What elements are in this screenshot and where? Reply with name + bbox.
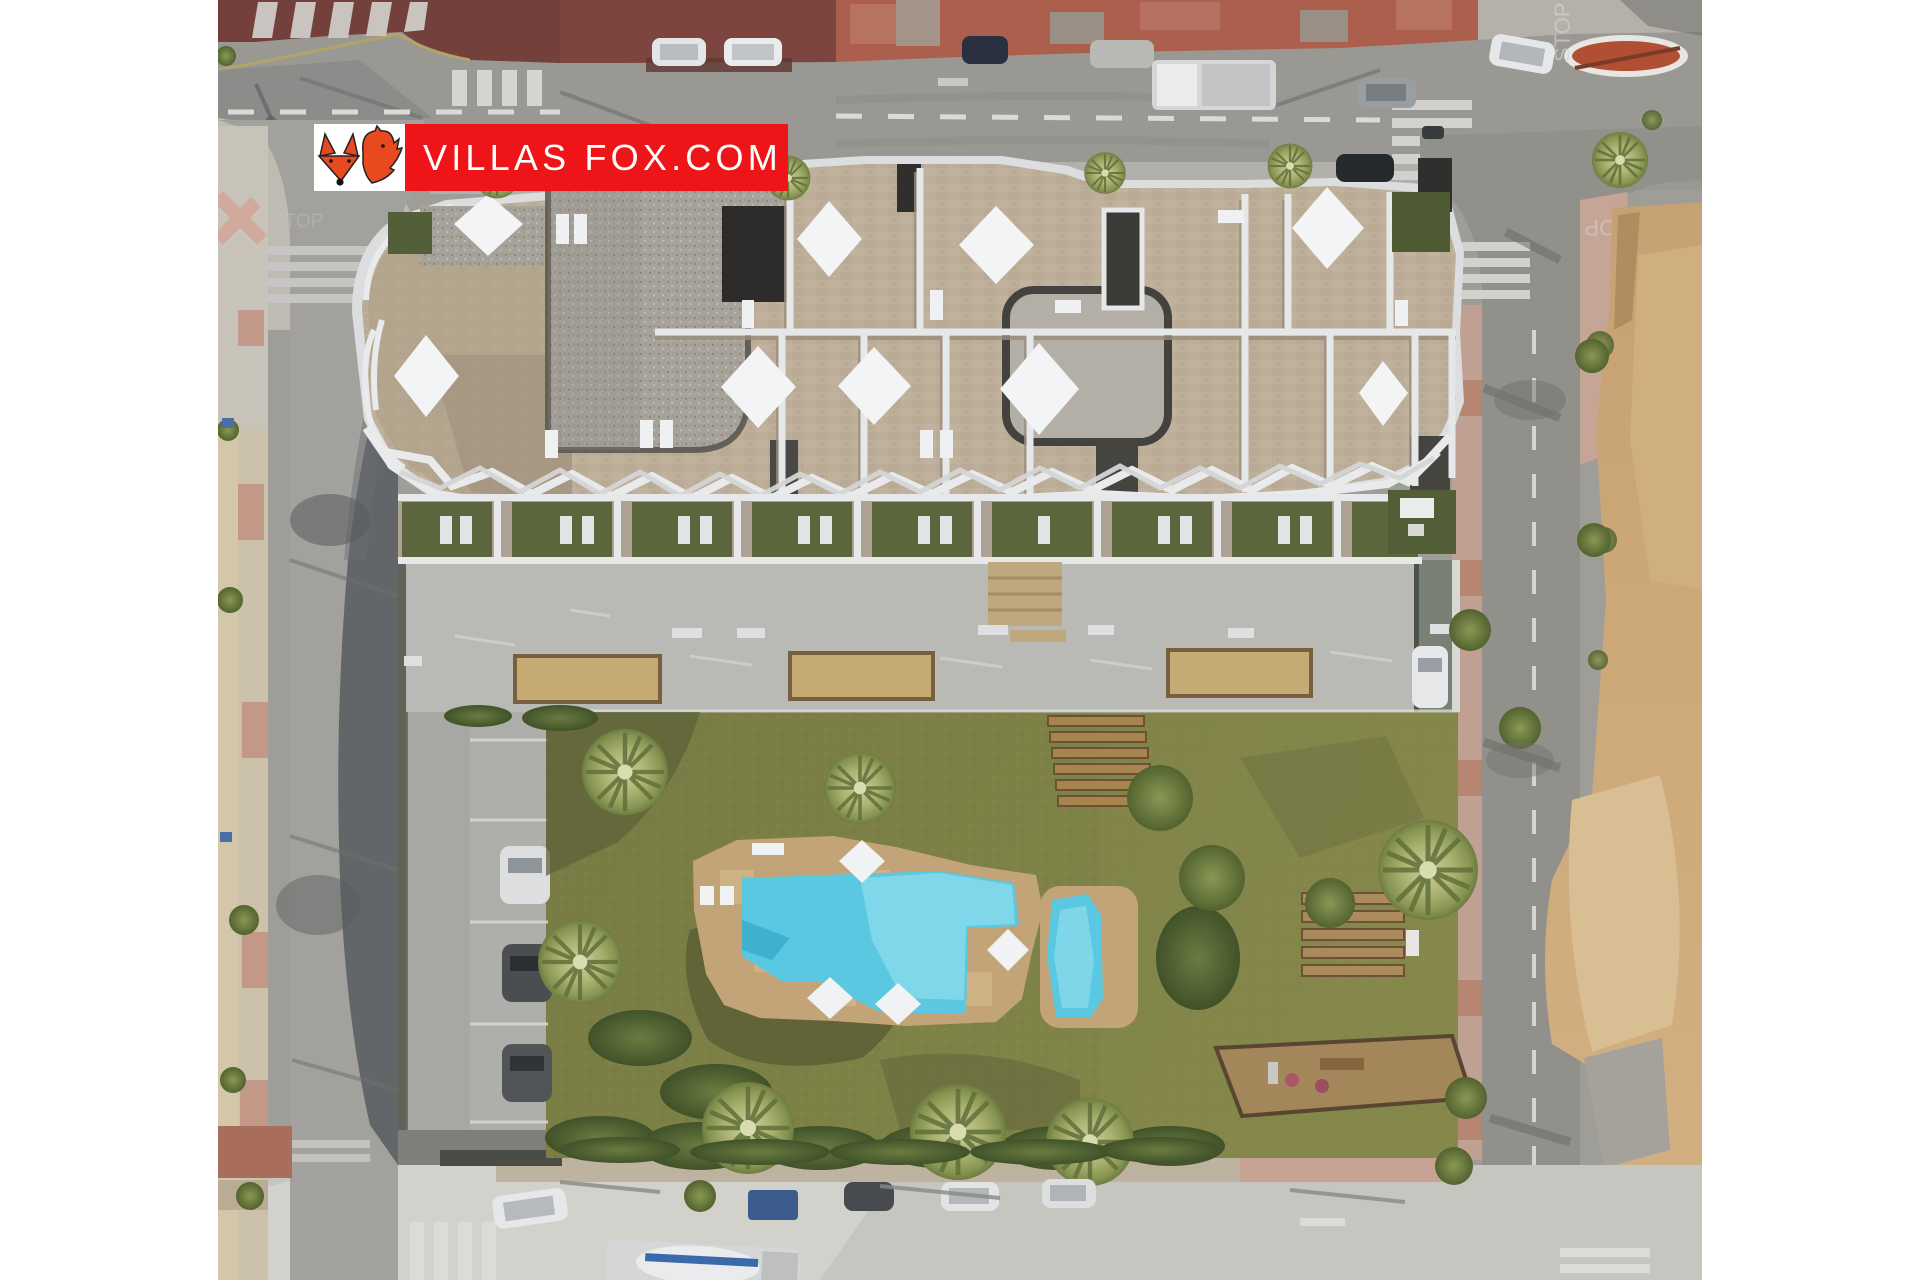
svg-text:VILLAS FOX.COM: VILLAS FOX.COM — [423, 137, 782, 178]
svg-text:STOP: STOP — [272, 211, 323, 232]
